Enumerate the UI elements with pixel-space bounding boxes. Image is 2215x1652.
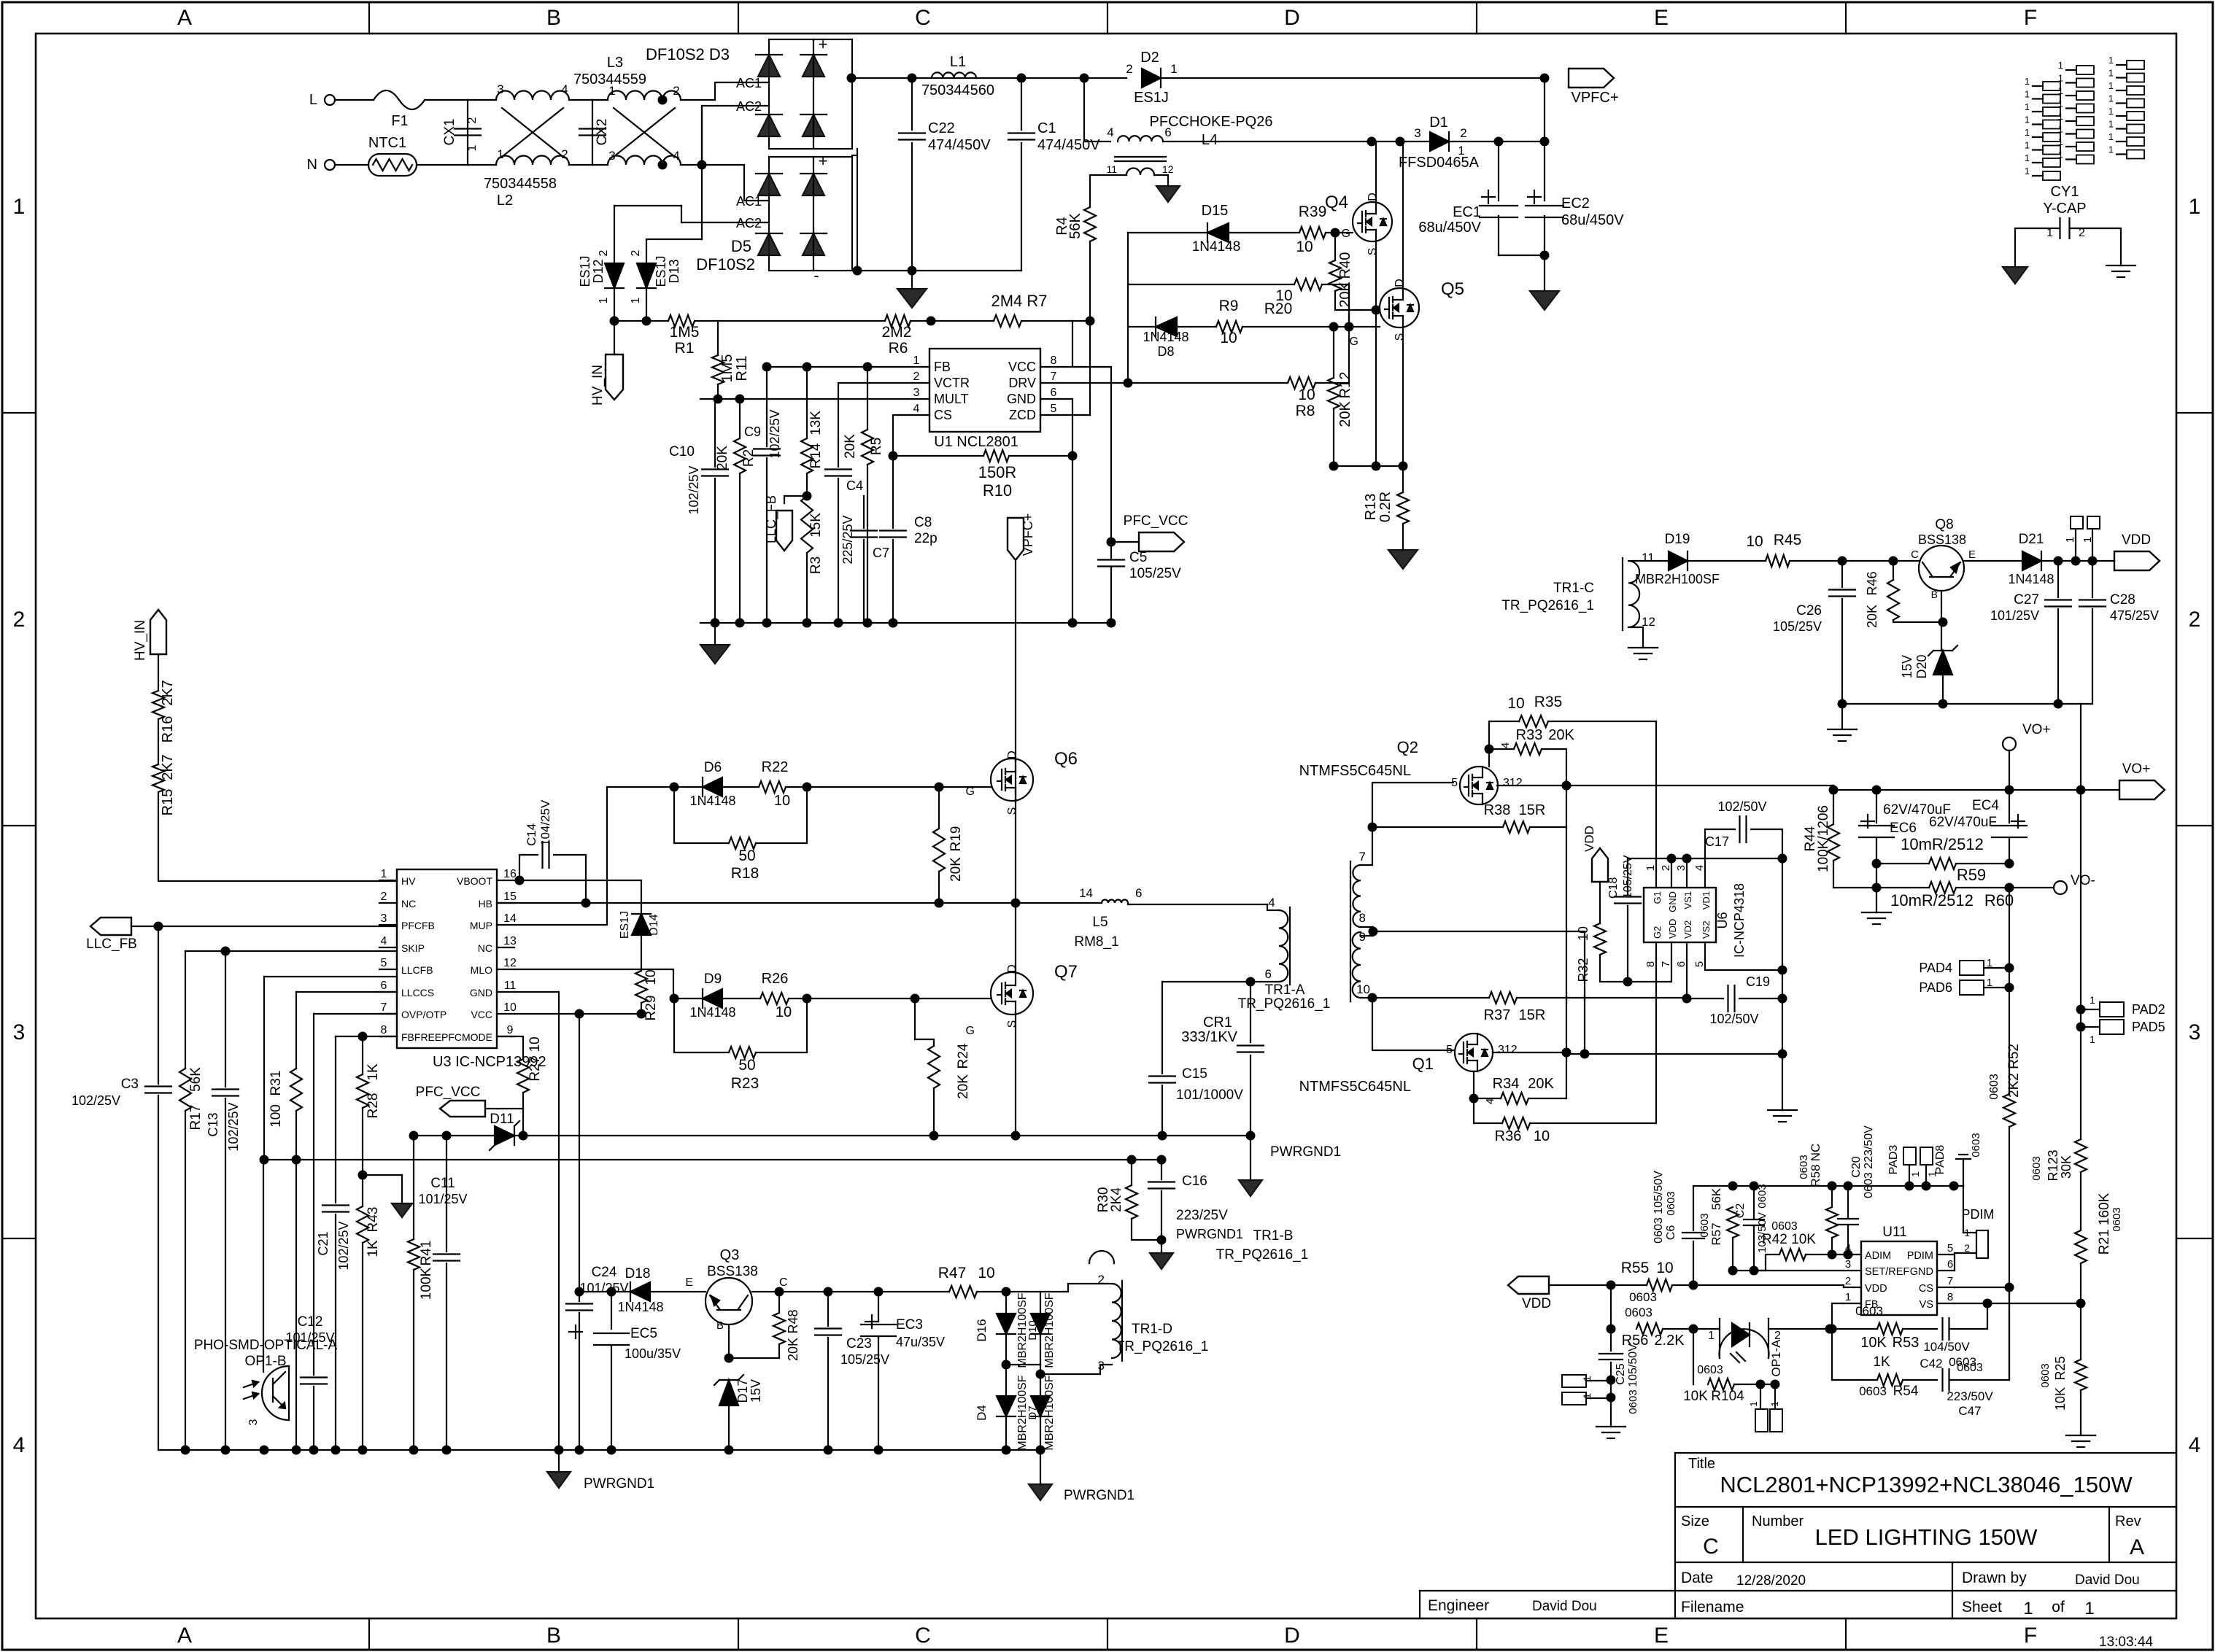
svg-text:C28: C28	[2110, 592, 2135, 608]
svg-text:1N4148: 1N4148	[1143, 330, 1188, 344]
svg-text:474/450V: 474/450V	[1037, 137, 1100, 153]
svg-text:MUP: MUP	[470, 920, 492, 931]
svg-text:14: 14	[503, 912, 517, 925]
svg-text:3: 3	[1098, 1359, 1105, 1373]
svg-text:10: 10	[1534, 1128, 1550, 1144]
svg-text:ADIM: ADIM	[1865, 1250, 1891, 1262]
svg-text:NTMFS5C645NL: NTMFS5C645NL	[1299, 763, 1411, 779]
svg-text:1: 1	[2025, 115, 2030, 125]
svg-text:S: S	[1393, 333, 1406, 341]
svg-text:NTMFS5C645NL: NTMFS5C645NL	[1299, 1079, 1411, 1095]
svg-text:CS: CS	[934, 408, 952, 422]
svg-text:1: 1	[2189, 195, 2201, 219]
svg-text:VD1: VD1	[1701, 891, 1712, 910]
svg-text:2: 2	[1660, 865, 1672, 871]
svg-text:C10: C10	[669, 444, 695, 459]
svg-text:Q4: Q4	[1325, 193, 1348, 212]
svg-text:C26: C26	[1796, 603, 1822, 618]
svg-text:10: 10	[1356, 982, 1370, 996]
svg-text:C25: C25	[1615, 1363, 1627, 1384]
svg-text:1: 1	[1708, 1330, 1715, 1342]
svg-text:PAD4: PAD4	[1919, 961, 1952, 975]
svg-text:R35: R35	[1534, 694, 1563, 710]
svg-text:TR1-D: TR1-D	[1132, 1322, 1172, 1337]
svg-text:1N4148: 1N4148	[617, 1300, 663, 1314]
svg-text:EC3: EC3	[896, 1317, 923, 1333]
svg-text:C16: C16	[1182, 1174, 1207, 1189]
svg-text:0603: 0603	[2039, 1363, 2052, 1387]
svg-text:1: 1	[1644, 865, 1657, 871]
svg-text:NCL2801+NCP13992+NCL38046_150W: NCL2801+NCP13992+NCL38046_150W	[1720, 1472, 2133, 1497]
svg-text:NC: NC	[1809, 1144, 1822, 1162]
svg-text:U11: U11	[1882, 1225, 1906, 1240]
svg-text:16: 16	[503, 868, 517, 880]
svg-text:PAD2: PAD2	[2132, 1002, 2165, 1017]
svg-text:David Dou: David Dou	[1532, 1599, 1597, 1614]
svg-text:102/25V: 102/25V	[768, 409, 782, 458]
svg-text:12: 12	[1162, 163, 1174, 175]
svg-text:D20: D20	[1914, 654, 1929, 678]
svg-text:2K7: 2K7	[160, 754, 176, 780]
svg-text:D2: D2	[1140, 50, 1159, 66]
svg-text:G1: G1	[1652, 891, 1663, 904]
svg-text:4: 4	[1268, 896, 1275, 910]
svg-text:R32: R32	[1576, 958, 1590, 982]
svg-text:NC: NC	[401, 898, 416, 910]
svg-text:10mR/2512: 10mR/2512	[1901, 835, 1984, 853]
svg-text:FB: FB	[934, 360, 951, 374]
svg-text:D5: D5	[731, 237, 751, 255]
svg-text:B: B	[546, 1624, 561, 1648]
svg-text:EC4: EC4	[1972, 798, 1999, 813]
svg-text:MBR2H100SF: MBR2H100SF	[1043, 1292, 1056, 1368]
svg-text:R39: R39	[1299, 203, 1327, 220]
svg-text:15: 15	[503, 891, 517, 903]
svg-text:101/1000V: 101/1000V	[1176, 1087, 1243, 1103]
svg-text:VO+: VO+	[2022, 722, 2051, 737]
svg-text:1: 1	[1845, 1291, 1851, 1303]
svg-text:10: 10	[1507, 695, 1524, 712]
svg-text:15R: 15R	[1519, 802, 1546, 818]
svg-text:AC1: AC1	[736, 76, 762, 90]
svg-text:LLCCS: LLCCS	[401, 987, 434, 998]
svg-text:VS: VS	[1920, 1299, 1933, 1311]
svg-text:R55: R55	[1621, 1260, 1650, 1276]
svg-text:1: 1	[2023, 1599, 2033, 1618]
svg-text:R27 10: R27 10	[527, 1036, 543, 1081]
svg-text:1K: 1K	[366, 1240, 381, 1257]
svg-text:1: 1	[608, 84, 615, 98]
svg-text:R6: R6	[889, 340, 908, 357]
svg-text:1: 1	[2025, 101, 2030, 112]
svg-text:10: 10	[978, 1265, 994, 1281]
svg-text:F: F	[2024, 6, 2037, 30]
svg-text:TR_PQ2616_1: TR_PQ2616_1	[1216, 1247, 1309, 1263]
svg-text:1: 1	[2058, 85, 2063, 96]
svg-text:4: 4	[2189, 1433, 2201, 1457]
svg-text:MLO: MLO	[471, 964, 492, 976]
svg-text:9: 9	[507, 1024, 514, 1036]
svg-text:R37: R37	[1484, 1007, 1511, 1023]
svg-text:Size: Size	[1681, 1513, 1709, 1529]
svg-text:2K4: 2K4	[1109, 1187, 1124, 1212]
svg-text:R19: R19	[948, 826, 964, 852]
svg-text:TR1-C: TR1-C	[1553, 581, 1594, 596]
svg-text:D18: D18	[625, 1266, 651, 1281]
svg-text:102/25V: 102/25V	[687, 465, 701, 514]
svg-text:R41: R41	[419, 1241, 434, 1266]
svg-text:R2: R2	[741, 449, 757, 467]
svg-text:S: S	[1006, 807, 1018, 815]
svg-text:6: 6	[1164, 125, 1171, 139]
svg-text:TR1-A: TR1-A	[1265, 982, 1305, 998]
svg-text:1: 1	[1926, 1171, 1938, 1177]
svg-text:AC2: AC2	[736, 99, 762, 114]
svg-text:R18: R18	[731, 865, 759, 882]
svg-text:CY1: CY1	[2051, 184, 2079, 200]
svg-text:1M5: 1M5	[719, 354, 735, 383]
svg-text:Q7: Q7	[1054, 962, 1078, 982]
svg-text:Q5: Q5	[1441, 279, 1464, 299]
svg-text:1: 1	[598, 297, 610, 303]
svg-text:C4: C4	[846, 478, 863, 493]
svg-text:5: 5	[381, 957, 387, 969]
svg-text:2: 2	[13, 608, 26, 632]
svg-text:8: 8	[1644, 961, 1657, 967]
svg-text:G: G	[1350, 336, 1358, 348]
svg-text:1: 1	[2090, 1034, 2095, 1045]
svg-text:56K: 56K	[188, 1067, 204, 1092]
svg-text:8: 8	[1051, 354, 1057, 367]
svg-text:10: 10	[774, 793, 790, 809]
svg-text:0603: 0603	[1988, 1074, 2001, 1100]
svg-text:6: 6	[1135, 886, 1142, 900]
svg-text:L2: L2	[497, 193, 513, 209]
svg-text:2: 2	[1964, 1242, 1970, 1254]
svg-text:of: of	[2052, 1599, 2065, 1616]
svg-text:R53: R53	[1893, 1335, 1920, 1351]
svg-text:R13: R13	[1363, 494, 1379, 521]
svg-text:4: 4	[561, 82, 568, 96]
svg-text:6: 6	[1947, 1258, 1953, 1271]
svg-text:10: 10	[1746, 533, 1763, 550]
svg-text:E: E	[1654, 1624, 1669, 1648]
svg-text:0603 223/50V: 0603 223/50V	[1863, 1125, 1875, 1198]
svg-text:TR1-B: TR1-B	[1253, 1228, 1294, 1244]
svg-text:VPFC+: VPFC+	[1021, 513, 1035, 557]
svg-text:15V: 15V	[1900, 655, 1914, 678]
svg-text:20K: 20K	[1548, 727, 1574, 743]
svg-text:8: 8	[1359, 911, 1366, 925]
svg-text:N: N	[307, 157, 317, 173]
svg-text:C: C	[1703, 1535, 1719, 1559]
svg-text:312: 312	[1498, 1044, 1518, 1056]
svg-text:1: 1	[1748, 1401, 1759, 1406]
svg-text:2.2K: 2.2K	[1654, 1333, 1685, 1349]
svg-text:Q8: Q8	[1935, 517, 1953, 532]
svg-text:100: 100	[268, 1104, 284, 1128]
svg-text:1: 1	[2058, 98, 2063, 109]
svg-text:R48: R48	[786, 1309, 800, 1333]
svg-text:ES1J: ES1J	[619, 911, 631, 939]
svg-text:1: 1	[2058, 73, 2063, 84]
svg-text:8: 8	[381, 1024, 387, 1036]
svg-text:1N4148: 1N4148	[689, 794, 735, 808]
svg-text:R22: R22	[762, 759, 789, 775]
svg-text:Q6: Q6	[1054, 749, 1078, 769]
svg-text:PWRGND1: PWRGND1	[1064, 1488, 1134, 1503]
svg-text:56K: 56K	[1067, 213, 1083, 239]
svg-text:PDIM: PDIM	[1962, 1207, 1995, 1222]
svg-text:D: D	[1006, 964, 1018, 973]
svg-text:68u/450V: 68u/450V	[1561, 212, 1624, 228]
svg-text:-: -	[813, 266, 819, 284]
svg-text:10: 10	[776, 1004, 792, 1020]
svg-text:20K: 20K	[956, 1074, 971, 1099]
svg-text:D8: D8	[1157, 344, 1174, 359]
svg-text:D1: D1	[1429, 115, 1448, 131]
svg-text:20K: 20K	[843, 434, 858, 459]
svg-text:NTC1: NTC1	[368, 135, 406, 151]
svg-text:Number: Number	[1752, 1513, 1804, 1529]
svg-text:Drawn by: Drawn by	[1962, 1570, 2027, 1586]
svg-text:0603: 0603	[1629, 1290, 1657, 1304]
svg-text:11: 11	[1642, 551, 1655, 565]
svg-text:15V: 15V	[749, 1379, 763, 1403]
svg-text:C6: C6	[1665, 1225, 1677, 1241]
svg-text:C11: C11	[430, 1176, 455, 1191]
svg-text:D: D	[1284, 1624, 1300, 1648]
svg-text:0603: 0603	[1798, 1155, 1810, 1179]
svg-text:10: 10	[643, 969, 659, 985]
svg-text:100u/35V: 100u/35V	[625, 1346, 681, 1361]
svg-text:102/50V: 102/50V	[1709, 1012, 1758, 1026]
svg-text:1: 1	[1909, 1171, 1921, 1177]
svg-text:PFCMODE: PFCMODE	[441, 1031, 492, 1043]
svg-text:L1: L1	[950, 54, 966, 70]
svg-text:1: 1	[2108, 106, 2114, 117]
svg-text:0603: 0603	[2111, 1207, 2123, 1231]
svg-text:20K: 20K	[948, 857, 964, 882]
svg-text:1: 1	[2108, 68, 2114, 79]
svg-text:68u/450V: 68u/450V	[1418, 220, 1481, 236]
svg-text:F: F	[2024, 1624, 2037, 1648]
svg-text:PWRGND1: PWRGND1	[1176, 1227, 1243, 1241]
svg-text:20K: 20K	[715, 446, 730, 470]
svg-text:1: 1	[2025, 89, 2030, 100]
svg-text:1N4148: 1N4148	[2008, 572, 2054, 586]
svg-text:C14: C14	[525, 823, 538, 846]
svg-text:10mR/2512: 10mR/2512	[1890, 891, 1974, 910]
svg-text:SKIP: SKIP	[401, 942, 425, 954]
svg-text:R36: R36	[1495, 1128, 1522, 1144]
svg-text:2: 2	[381, 891, 387, 903]
svg-text:G: G	[1342, 228, 1350, 240]
svg-text:10: 10	[1576, 926, 1590, 941]
svg-text:47u/35V: 47u/35V	[896, 1335, 945, 1349]
svg-text:R21 160K: R21 160K	[2097, 1193, 2112, 1254]
svg-text:Sheet: Sheet	[1962, 1599, 2002, 1616]
svg-text:2: 2	[1098, 1273, 1105, 1287]
svg-text:GND: GND	[1667, 891, 1678, 912]
svg-text:4: 4	[673, 149, 679, 163]
svg-text:+: +	[819, 152, 828, 170]
svg-text:13: 13	[503, 935, 517, 947]
svg-text:E: E	[1654, 6, 1669, 30]
svg-text:3: 3	[1414, 126, 1420, 140]
svg-text:10: 10	[1656, 1260, 1673, 1276]
svg-text:0603: 0603	[1957, 1362, 1983, 1374]
svg-text:L3: L3	[607, 55, 623, 71]
svg-text:DRV: DRV	[1008, 376, 1036, 390]
svg-text:1: 1	[466, 144, 479, 151]
svg-text:ZCD: ZCD	[1009, 408, 1036, 422]
svg-text:R11: R11	[734, 355, 750, 381]
svg-text:GND: GND	[470, 987, 492, 998]
svg-text:100K: 100K	[419, 1267, 434, 1300]
svg-text:C7: C7	[873, 546, 889, 560]
svg-text:PWRGND1: PWRGND1	[584, 1476, 654, 1492]
svg-text:PFCFB: PFCFB	[401, 920, 435, 931]
svg-text:EC5: EC5	[630, 1326, 657, 1341]
svg-text:3: 3	[381, 912, 387, 925]
svg-text:SET/REF: SET/REF	[1865, 1266, 1909, 1278]
svg-text:Date: Date	[1681, 1570, 1713, 1586]
svg-text:C23: C23	[846, 1336, 872, 1352]
svg-text:2: 2	[1460, 126, 1466, 140]
svg-text:15K: 15K	[808, 513, 824, 538]
svg-text:2M2: 2M2	[882, 324, 912, 341]
svg-text:0603 105/50V: 0603 105/50V	[1652, 1171, 1665, 1244]
svg-text:PDIM: PDIM	[1907, 1250, 1933, 1262]
svg-text:11: 11	[1106, 163, 1117, 175]
svg-text:2K7: 2K7	[160, 680, 176, 706]
svg-text:S: S	[1367, 248, 1379, 256]
svg-text:1: 1	[2084, 1599, 2094, 1618]
svg-text:G: G	[966, 786, 975, 798]
svg-text:LLCFB: LLCFB	[401, 964, 433, 976]
svg-text:Filename: Filename	[1681, 1599, 1744, 1616]
svg-text:VS1: VS1	[1682, 891, 1693, 910]
svg-text:D: D	[1284, 6, 1300, 30]
svg-text:C: C	[915, 6, 931, 30]
svg-text:1: 1	[2025, 76, 2030, 87]
svg-text:PAD5: PAD5	[2132, 1020, 2165, 1034]
svg-text:R9: R9	[1219, 298, 1239, 314]
svg-text:7: 7	[1660, 961, 1672, 967]
svg-text:D6: D6	[704, 760, 722, 775]
svg-text:C22: C22	[928, 120, 955, 136]
svg-text:2: 2	[913, 371, 920, 383]
svg-text:C19: C19	[1746, 974, 1770, 989]
svg-text:DF10S2 D3: DF10S2 D3	[646, 45, 730, 63]
svg-text:CS: CS	[1919, 1283, 1933, 1295]
svg-text:LLC_FB: LLC_FB	[86, 936, 137, 952]
svg-text:1: 1	[2058, 124, 2063, 135]
svg-text:20K: 20K	[1865, 605, 1879, 628]
svg-text:B: B	[1931, 589, 1938, 600]
svg-text:B: B	[716, 1319, 724, 1332]
svg-text:1: 1	[2025, 166, 2030, 177]
svg-text:105/25V: 105/25V	[1773, 619, 1822, 634]
svg-text:D21: D21	[2019, 532, 2044, 547]
svg-text:0603: 0603	[1627, 1389, 1639, 1413]
svg-text:D12: D12	[591, 259, 606, 283]
svg-text:C47: C47	[1958, 1404, 1981, 1418]
svg-text:12/28/2020: 12/28/2020	[1736, 1573, 1806, 1589]
svg-text:4: 4	[913, 403, 920, 415]
svg-text:3: 3	[13, 1020, 26, 1044]
svg-text:2: 2	[561, 147, 568, 161]
svg-text:VCC: VCC	[1008, 360, 1036, 374]
svg-text:D14: D14	[648, 914, 660, 935]
svg-text:VD2: VD2	[1682, 920, 1693, 939]
svg-text:FBFREE: FBFREE	[401, 1031, 441, 1043]
svg-text:R28: R28	[366, 1093, 381, 1119]
svg-text:R1: R1	[675, 340, 695, 357]
svg-text:R40: R40	[1337, 252, 1353, 279]
svg-text:13K: 13K	[808, 411, 824, 435]
svg-text:2: 2	[630, 249, 642, 256]
svg-text:7: 7	[1947, 1275, 1953, 1287]
svg-text:102/50V: 102/50V	[1717, 799, 1766, 814]
svg-text:104/25V: 104/25V	[538, 799, 552, 846]
svg-text:1: 1	[2058, 60, 2063, 71]
svg-text:CX1: CX1	[442, 119, 457, 146]
svg-text:R47: R47	[938, 1265, 967, 1281]
svg-text:ES1J: ES1J	[654, 255, 668, 287]
svg-text:R59: R59	[1957, 866, 1986, 884]
svg-text:R12: R12	[1337, 372, 1353, 399]
svg-text:R29: R29	[643, 996, 659, 1021]
svg-text:15R: 15R	[1519, 1007, 1546, 1023]
svg-text:1: 1	[2064, 537, 2076, 543]
svg-text:2M4 R7: 2M4 R7	[991, 292, 1047, 310]
svg-text:U6: U6	[1715, 912, 1730, 928]
svg-text:OP1-A: OP1-A	[1769, 1339, 1783, 1377]
svg-text:223/50V: 223/50V	[1947, 1389, 1993, 1403]
svg-text:C20: C20	[1850, 1156, 1863, 1177]
svg-text:62V/470uF: 62V/470uF	[1929, 815, 1997, 830]
svg-text:C21: C21	[316, 1231, 330, 1255]
svg-text:R33: R33	[1516, 727, 1543, 743]
svg-text:Q2: Q2	[1397, 738, 1418, 756]
svg-text:2: 2	[1845, 1275, 1851, 1287]
svg-text:104/50V: 104/50V	[1923, 1340, 1970, 1354]
svg-text:6: 6	[1265, 967, 1272, 981]
svg-text:10K: 10K	[2053, 1387, 2068, 1411]
svg-text:474/450V: 474/450V	[928, 137, 991, 153]
svg-text:R34: R34	[1493, 1076, 1520, 1092]
svg-text:1: 1	[2090, 994, 2095, 1006]
svg-text:TR_PQ2616_1: TR_PQ2616_1	[1238, 996, 1331, 1012]
svg-text:R45: R45	[1774, 532, 1802, 548]
svg-text:GND: GND	[1910, 1266, 1933, 1278]
svg-text:VDD: VDD	[1865, 1283, 1887, 1295]
svg-text:C: C	[1911, 548, 1919, 561]
svg-text:1: 1	[2025, 127, 2030, 138]
svg-text:2K2 R52: 2K2 R52	[2006, 1044, 2022, 1098]
svg-text:C5: C5	[1129, 550, 1147, 565]
svg-text:R54: R54	[1893, 1384, 1919, 1399]
svg-text:PFC_VCC: PFC_VCC	[416, 1085, 481, 1100]
svg-text:333/1KV: 333/1KV	[1181, 1029, 1237, 1045]
svg-text:1K: 1K	[366, 1063, 381, 1081]
svg-text:D13: D13	[667, 259, 681, 283]
svg-text:C2: C2	[1734, 1203, 1747, 1219]
svg-text:ES1J: ES1J	[578, 255, 592, 287]
svg-text:R123: R123	[2046, 1149, 2060, 1181]
